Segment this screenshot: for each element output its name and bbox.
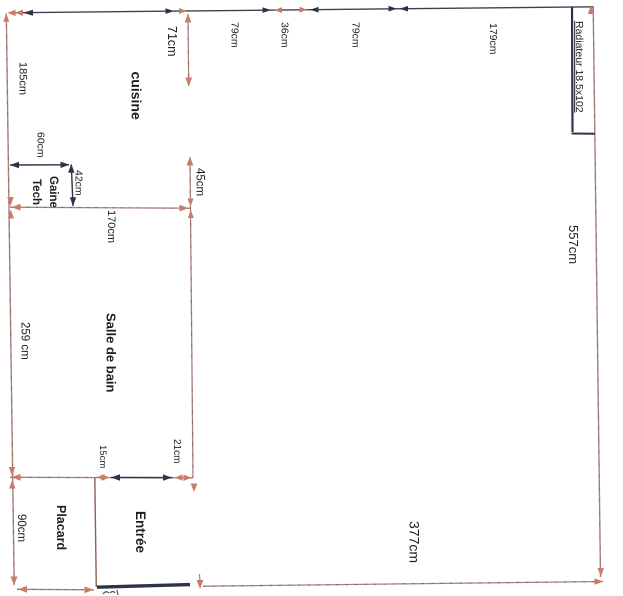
svg-text:259 cm: 259 cm — [19, 322, 31, 360]
svg-text:Salle de bain: Salle de bain — [104, 313, 119, 393]
svg-text:Tech: Tech — [30, 179, 42, 205]
svg-text:90cm: 90cm — [15, 514, 27, 542]
svg-text:Placard: Placard — [54, 505, 68, 550]
svg-text:185cm: 185cm — [17, 62, 29, 95]
svg-text:Gaine: Gaine — [47, 176, 59, 208]
svg-text:21cm: 21cm — [171, 439, 182, 463]
svg-text:179cm: 179cm — [487, 23, 499, 55]
svg-text:71cm: 71cm — [165, 26, 179, 57]
svg-text:377cm: 377cm — [407, 521, 423, 563]
svg-text:79cm: 79cm — [350, 22, 362, 48]
svg-text:45cm: 45cm — [194, 168, 206, 196]
svg-text:557cm: 557cm — [566, 225, 581, 264]
svg-text:42cm: 42cm — [73, 170, 85, 196]
svg-text:cuisine: cuisine — [129, 72, 145, 120]
svg-text:Radiateur 18.5x102: Radiateur 18.5x102 — [573, 21, 585, 113]
svg-text:Entrée: Entrée — [133, 511, 148, 554]
svg-text:15cm: 15cm — [97, 445, 108, 468]
svg-text:60cm: 60cm — [35, 132, 47, 158]
svg-text:79cm: 79cm — [229, 22, 241, 48]
svg-text:170cm: 170cm — [105, 210, 117, 243]
svg-text:36cm: 36cm — [279, 22, 291, 48]
